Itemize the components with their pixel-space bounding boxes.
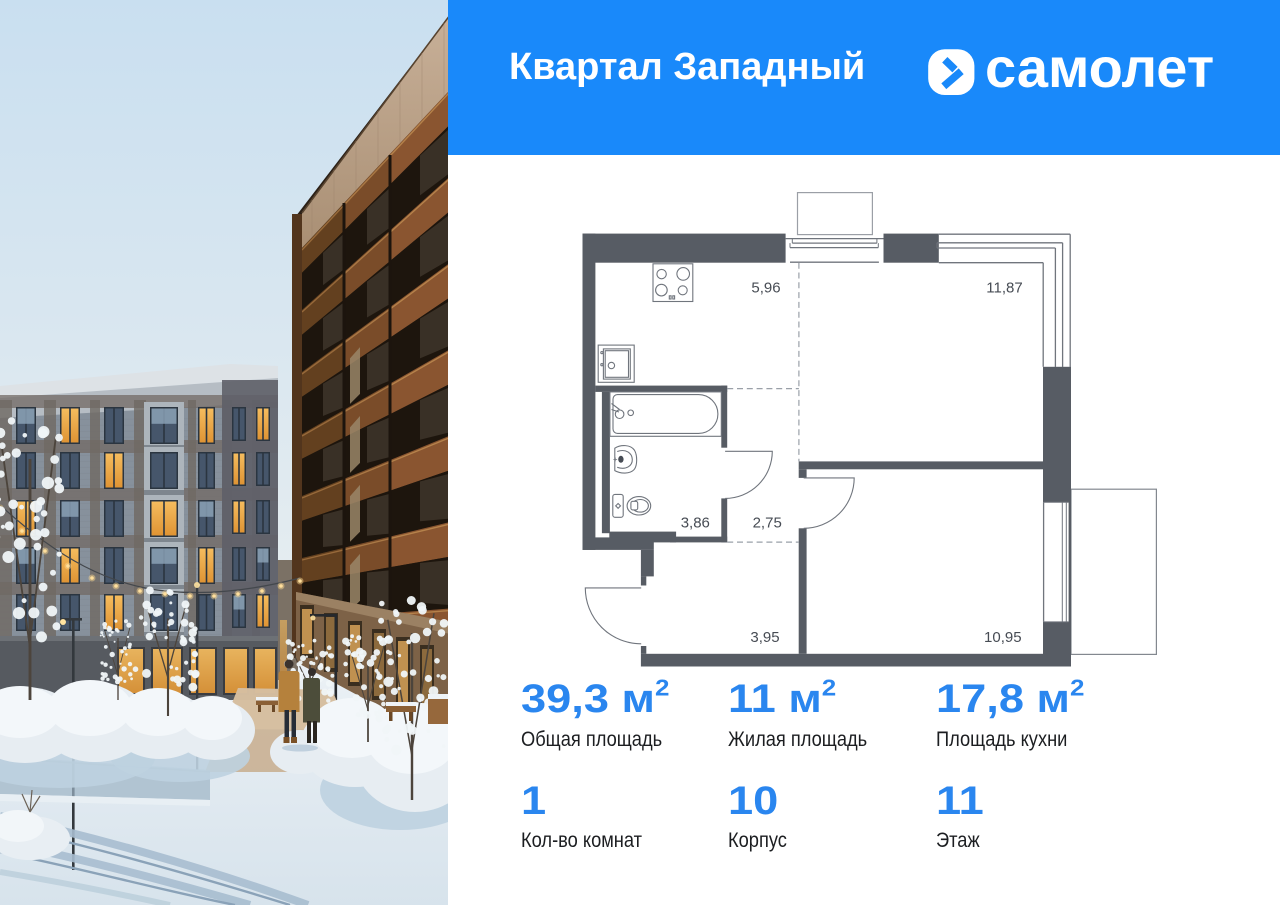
svg-text:5,96: 5,96 xyxy=(751,280,780,297)
svg-text:самолет: самолет xyxy=(985,40,1214,99)
svg-text:11,87: 11,87 xyxy=(986,280,1022,297)
svg-text:2,75: 2,75 xyxy=(753,515,782,532)
svg-text:3,86: 3,86 xyxy=(681,515,710,532)
svg-text:3,95: 3,95 xyxy=(750,629,779,646)
svg-text:10,95: 10,95 xyxy=(984,629,1022,646)
